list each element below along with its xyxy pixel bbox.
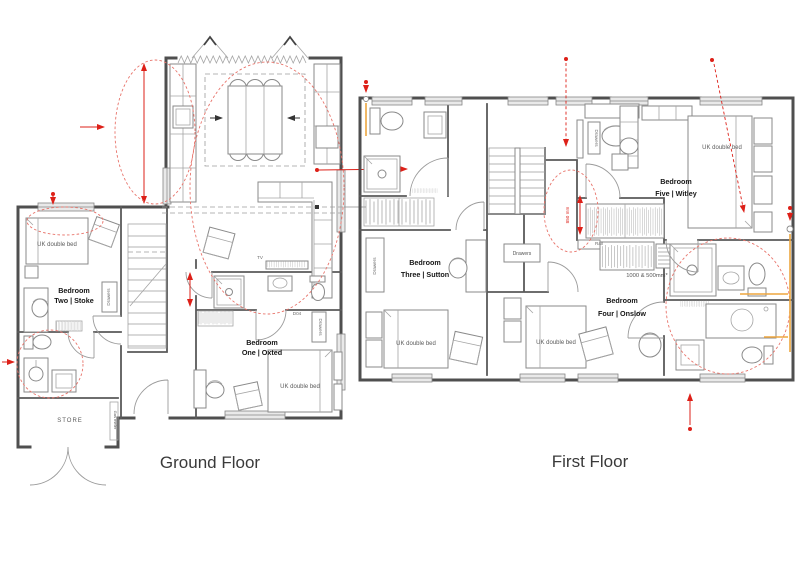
wardrobe-dimension-label: 1000 & 500mm* — [626, 273, 668, 279]
landing-drawers-label: Drawers — [594, 129, 599, 147]
rooflight-icons — [192, 37, 308, 58]
bedroom-two-door — [93, 316, 121, 344]
bedroom-three-bed-label: UK double bed — [396, 341, 436, 347]
first-floor-plan: Drawers Drawers Bedroom Three | Sutton U… — [360, 57, 793, 471]
bedroom-two-bed-label: UK double bed — [37, 242, 77, 248]
bedroom-three-drawers-label: Drawers — [372, 257, 377, 275]
bedroom-two-name-1: Bedroom — [58, 286, 90, 295]
bedroom-four-name-1: Bedroom — [606, 296, 638, 305]
living-ceiling-dashes — [162, 205, 366, 213]
ensuite-top — [666, 240, 766, 307]
floor-plan-drawing: UK double bed Bedroom Two | Stoke Drawer… — [0, 0, 800, 566]
ground-floor-plan: UK double bed Bedroom Two | Stoke Drawer… — [2, 37, 407, 485]
ground-floor-title: Ground Floor — [160, 453, 260, 472]
rail-label: Rail — [595, 241, 603, 246]
bedroom-four-bed-label: UK double bed — [536, 340, 576, 346]
stairs-ground — [128, 224, 166, 348]
bedroom-three-name-2: Three | Sutton — [401, 270, 449, 279]
bedroom-five-name-2: Five | Witley — [655, 189, 697, 198]
bedroom-one-drawers-label: Drawers — [318, 318, 323, 336]
family-bathroom — [364, 108, 448, 226]
bedroom-one-bed-label: UK double bed — [280, 384, 320, 390]
armchair — [203, 227, 235, 259]
door-width-label: 850 mm — [565, 207, 570, 224]
bifold-door-icon — [178, 56, 306, 63]
stairs-first — [489, 148, 545, 214]
bedroom-three-name-1: Bedroom — [409, 258, 441, 267]
gas-meter-label: Gas meter — [113, 411, 118, 430]
bedroom-one-name-1: Bedroom — [246, 338, 278, 347]
wardrobes — [578, 204, 678, 270]
tv-unit — [266, 261, 308, 269]
bedroom-two-drawers-label: Drawers — [106, 288, 111, 306]
bedroom-four-name-2: Four | Onslow — [598, 309, 646, 318]
tv-label: TV — [257, 255, 264, 260]
bedroom-two-name-2: Two | Stoke — [54, 296, 93, 305]
bedroom-four-drawers-label: Drawers — [513, 251, 532, 257]
store-room — [30, 380, 168, 485]
store-label: STORE — [57, 418, 83, 424]
floor-plan-sheet: UK double bed Bedroom Two | Stoke Drawer… — [0, 0, 800, 566]
first-floor-title: First Floor — [552, 452, 629, 471]
ground-bathroom — [24, 332, 94, 392]
bedroom-one-door — [256, 310, 286, 340]
bedroom-one-bathroom — [186, 272, 325, 308]
bedroom-five-bed-label: UK double bed — [702, 145, 742, 151]
bedroom-two-furniture — [24, 217, 119, 332]
bedroom-one-name-2: One | Oxted — [242, 348, 282, 357]
door-tag-d04: D04 — [293, 311, 302, 316]
bedroom-five-name-1: Bedroom — [660, 177, 692, 186]
